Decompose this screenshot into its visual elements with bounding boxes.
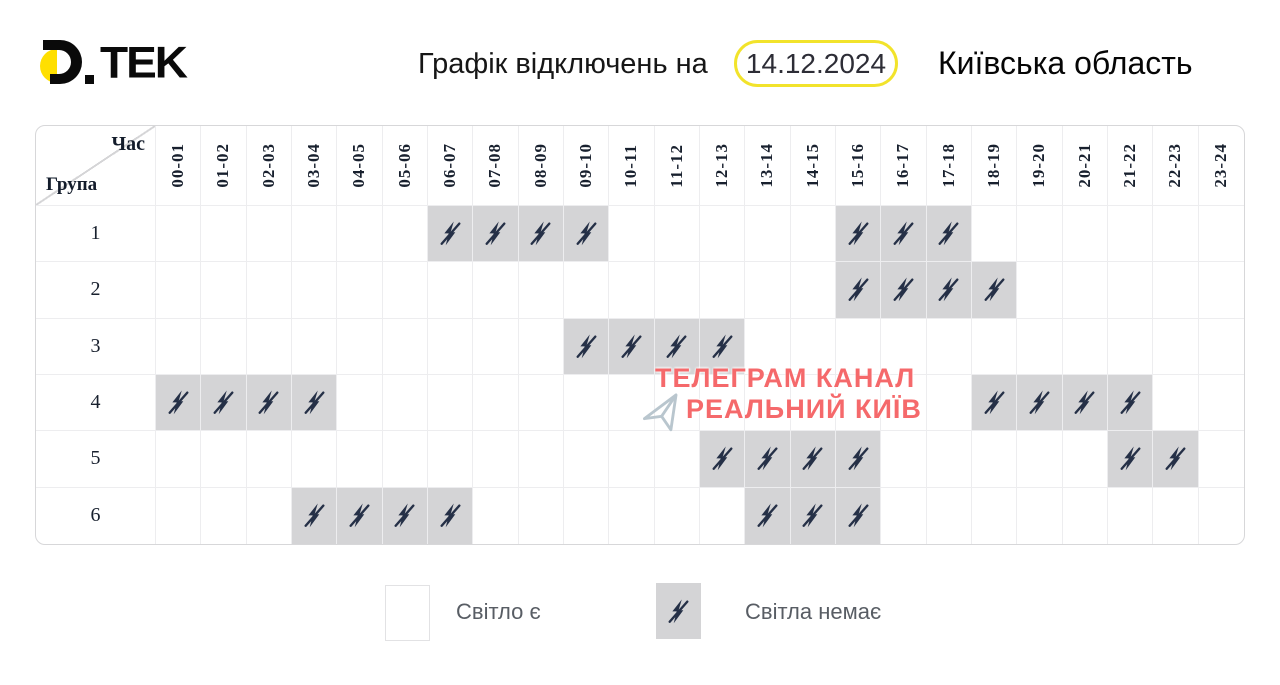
schedule-cell-g3-20-21-on <box>1063 319 1108 375</box>
schedule-cell-g3-01-02-on <box>201 319 246 375</box>
schedule-cell-g1-07-08-off <box>473 206 518 262</box>
schedule-cell-g6-23-24-on <box>1199 488 1244 544</box>
schedule-cell-g2-02-03-on <box>247 262 292 318</box>
hour-header-18-19: 18-19 <box>972 126 1017 206</box>
schedule-cell-g5-22-23-off <box>1153 431 1198 487</box>
schedule-cell-g6-14-15-off <box>791 488 836 544</box>
group-label-5: 5 <box>36 431 156 487</box>
schedule-cell-g4-21-22-off <box>1108 375 1153 431</box>
schedule-cell-g3-00-01-on <box>156 319 201 375</box>
hour-label: 20-21 <box>1075 143 1095 188</box>
schedule-cell-g1-08-09-off <box>519 206 564 262</box>
schedule-cell-g6-05-06-off <box>383 488 428 544</box>
hour-header-13-14: 13-14 <box>745 126 790 206</box>
schedule-cell-g3-07-08-on <box>473 319 518 375</box>
schedule-cell-g3-06-07-on <box>428 319 473 375</box>
power-off-icon <box>847 445 870 472</box>
power-off-icon <box>711 333 734 360</box>
hour-label: 10-11 <box>621 144 641 188</box>
schedule-cell-g6-22-23-on <box>1153 488 1198 544</box>
schedule-cell-g2-09-10-on <box>564 262 609 318</box>
hour-header-20-21: 20-21 <box>1063 126 1108 206</box>
schedule-cell-g4-20-21-off <box>1063 375 1108 431</box>
schedule-cell-g5-07-08-on <box>473 431 518 487</box>
schedule-cell-g5-04-05-on <box>337 431 382 487</box>
schedule-cell-g6-20-21-on <box>1063 488 1108 544</box>
schedule-cell-g2-06-07-on <box>428 262 473 318</box>
schedule-cell-g5-13-14-off <box>745 431 790 487</box>
hour-label: 03-04 <box>304 143 324 188</box>
hour-label: 23-24 <box>1211 143 1231 188</box>
page: TEK Графік відключень на 14.12.2024 Київ… <box>0 0 1280 685</box>
schedule-cell-g2-15-16-off <box>836 262 881 318</box>
schedule-cell-g2-08-09-on <box>519 262 564 318</box>
schedule-cell-g1-13-14-on <box>745 206 790 262</box>
power-off-icon <box>983 389 1006 416</box>
power-off-icon <box>348 502 371 529</box>
schedule-cell-g6-01-02-on <box>201 488 246 544</box>
schedule-cell-g3-23-24-on <box>1199 319 1244 375</box>
schedule-cell-g2-11-12-on <box>655 262 700 318</box>
power-off-icon <box>439 220 462 247</box>
hour-header-22-23: 22-23 <box>1153 126 1198 206</box>
schedule-cell-g1-15-16-off <box>836 206 881 262</box>
schedule-cell-g2-07-08-on <box>473 262 518 318</box>
hour-label: 15-16 <box>848 143 868 188</box>
schedule-cell-g1-18-19-on <box>972 206 1017 262</box>
power-off-icon <box>257 389 280 416</box>
hour-header-10-11: 10-11 <box>609 126 654 206</box>
schedule-cell-g2-05-06-on <box>383 262 428 318</box>
power-off-icon <box>1119 445 1142 472</box>
schedule-cell-g1-11-12-on <box>655 206 700 262</box>
region-label: Київська область <box>938 45 1193 82</box>
power-off-icon <box>212 389 235 416</box>
hour-header-07-08: 07-08 <box>473 126 518 206</box>
schedule-cell-g4-04-05-on <box>337 375 382 431</box>
schedule-cell-g6-07-08-on <box>473 488 518 544</box>
power-off-icon <box>937 220 960 247</box>
legend-off-box <box>656 583 701 639</box>
power-off-icon <box>1119 389 1142 416</box>
schedule-cell-g6-17-18-on <box>927 488 972 544</box>
hour-header-00-01: 00-01 <box>156 126 201 206</box>
hour-label: 05-06 <box>395 143 415 188</box>
power-off-icon <box>1164 445 1187 472</box>
power-off-icon <box>575 333 598 360</box>
schedule-cell-g4-03-04-off <box>292 375 337 431</box>
group-label-2: 2 <box>36 262 156 318</box>
hour-label: 08-09 <box>531 143 551 188</box>
power-off-icon <box>167 389 190 416</box>
power-off-icon <box>801 502 824 529</box>
schedule-cell-g4-00-01-off <box>156 375 201 431</box>
schedule-cell-g1-21-22-on <box>1108 206 1153 262</box>
power-off-icon <box>439 502 462 529</box>
schedule-cell-g5-06-07-on <box>428 431 473 487</box>
schedule-cell-g3-02-03-on <box>247 319 292 375</box>
schedule-cell-g5-12-13-off <box>700 431 745 487</box>
watermark-line2: РЕАЛЬНИЙ КИЇВ <box>686 394 922 425</box>
schedule-cell-g6-09-10-on <box>564 488 609 544</box>
schedule-cell-g2-13-14-on <box>745 262 790 318</box>
hour-label: 18-19 <box>984 143 1004 188</box>
hour-label: 21-22 <box>1120 143 1140 188</box>
legend: Світло є Світла немає <box>0 583 1280 645</box>
schedule-cell-g6-00-01-on <box>156 488 201 544</box>
hour-header-14-15: 14-15 <box>791 126 836 206</box>
schedule-table: Час Група 00-0101-0202-0303-0404-0505-06… <box>35 125 1245 545</box>
schedule-cell-g3-22-23-on <box>1153 319 1198 375</box>
schedule-cell-g1-10-11-on <box>609 206 654 262</box>
schedule-cell-g6-04-05-off <box>337 488 382 544</box>
schedule-cell-g5-01-02-on <box>201 431 246 487</box>
schedule-cell-g5-08-09-on <box>519 431 564 487</box>
watermark-line1: ТЕЛЕГРАМ КАНАЛ <box>655 363 915 394</box>
schedule-cell-g1-02-03-on <box>247 206 292 262</box>
schedule-cell-g5-15-16-off <box>836 431 881 487</box>
schedule-cell-g5-09-10-on <box>564 431 609 487</box>
schedule-cell-g2-04-05-on <box>337 262 382 318</box>
hour-label: 00-01 <box>168 143 188 188</box>
schedule-cell-g1-00-01-on <box>156 206 201 262</box>
power-off-icon <box>303 502 326 529</box>
power-off-icon <box>1028 389 1051 416</box>
schedule-cell-g4-01-02-off <box>201 375 246 431</box>
power-off-icon <box>575 220 598 247</box>
schedule-cell-g2-12-13-on <box>700 262 745 318</box>
schedule-cell-g5-21-22-off <box>1108 431 1153 487</box>
power-off-icon <box>983 276 1006 303</box>
hour-label: 13-14 <box>757 143 777 188</box>
power-off-icon <box>303 389 326 416</box>
schedule-cell-g6-10-11-on <box>609 488 654 544</box>
schedule-cell-g2-18-19-off <box>972 262 1017 318</box>
hour-header-15-16: 15-16 <box>836 126 881 206</box>
power-off-icon <box>756 502 779 529</box>
hour-header-11-12: 11-12 <box>655 126 700 206</box>
schedule-cell-g3-17-18-on <box>927 319 972 375</box>
schedule-cell-g6-03-04-off <box>292 488 337 544</box>
hour-label: 06-07 <box>440 143 460 188</box>
schedule-cell-g1-20-21-on <box>1063 206 1108 262</box>
power-off-icon <box>892 220 915 247</box>
schedule-cell-g3-09-10-off <box>564 319 609 375</box>
hour-header-05-06: 05-06 <box>383 126 428 206</box>
schedule-cell-g5-20-21-on <box>1063 431 1108 487</box>
hour-label: 16-17 <box>893 143 913 188</box>
hour-header-03-04: 03-04 <box>292 126 337 206</box>
group-label-6: 6 <box>36 488 156 544</box>
power-off-icon <box>801 445 824 472</box>
schedule-cell-g4-17-18-on <box>927 375 972 431</box>
schedule-cell-g5-00-01-on <box>156 431 201 487</box>
hour-label: 02-03 <box>259 143 279 188</box>
hour-label: 12-13 <box>712 143 732 188</box>
power-off-icon <box>847 276 870 303</box>
schedule-cell-g3-19-20-on <box>1017 319 1062 375</box>
schedule-cell-g6-08-09-on <box>519 488 564 544</box>
schedule-cell-g6-12-13-on <box>700 488 745 544</box>
schedule-cell-g6-16-17-on <box>881 488 926 544</box>
schedule-cell-g2-17-18-off <box>927 262 972 318</box>
hour-header-17-18: 17-18 <box>927 126 972 206</box>
schedule-cell-g3-05-06-on <box>383 319 428 375</box>
hour-header-08-09: 08-09 <box>519 126 564 206</box>
schedule-cell-g3-10-11-off <box>609 319 654 375</box>
schedule-cell-g6-02-03-on <box>247 488 292 544</box>
schedule-cell-g6-13-14-off <box>745 488 790 544</box>
schedule-cell-g2-14-15-on <box>791 262 836 318</box>
power-off-icon <box>665 333 688 360</box>
legend-off-label: Світла немає <box>745 599 881 625</box>
power-off-icon <box>1073 389 1096 416</box>
schedule-cell-g2-23-24-on <box>1199 262 1244 318</box>
schedule-cell-g1-06-07-off <box>428 206 473 262</box>
schedule-cell-g4-06-07-on <box>428 375 473 431</box>
hour-label: 11-12 <box>667 144 687 188</box>
schedule-cell-g5-02-03-on <box>247 431 292 487</box>
schedule-cell-g3-04-05-on <box>337 319 382 375</box>
group-label-3: 3 <box>36 319 156 375</box>
hour-label: 19-20 <box>1029 143 1049 188</box>
hour-header-19-20: 19-20 <box>1017 126 1062 206</box>
dtek-logo-d-icon <box>36 36 98 88</box>
schedule-cell-g4-18-19-off <box>972 375 1017 431</box>
schedule-cell-g1-17-18-off <box>927 206 972 262</box>
hour-header-09-10: 09-10 <box>564 126 609 206</box>
hour-label: 22-23 <box>1165 143 1185 188</box>
dtek-logo-text: TEK <box>100 37 186 87</box>
power-off-icon <box>393 502 416 529</box>
hour-header-01-02: 01-02 <box>201 126 246 206</box>
power-off-icon <box>711 445 734 472</box>
schedule-cell-g5-17-18-on <box>927 431 972 487</box>
schedule-cell-g1-04-05-on <box>337 206 382 262</box>
schedule-cell-g6-06-07-off <box>428 488 473 544</box>
power-off-icon <box>847 502 870 529</box>
power-off-icon <box>620 333 643 360</box>
date-value: 14.12.2024 <box>746 48 886 80</box>
hour-header-16-17: 16-17 <box>881 126 926 206</box>
schedule-cell-g6-18-19-on <box>972 488 1017 544</box>
schedule-cell-g5-23-24-on <box>1199 431 1244 487</box>
schedule-cell-g5-14-15-off <box>791 431 836 487</box>
schedule-cell-g6-19-20-on <box>1017 488 1062 544</box>
schedule-cell-g4-23-24-on <box>1199 375 1244 431</box>
schedule-cell-g2-20-21-on <box>1063 262 1108 318</box>
schedule-cell-g5-16-17-on <box>881 431 926 487</box>
schedule-cell-g2-21-22-on <box>1108 262 1153 318</box>
hour-label: 01-02 <box>213 143 233 188</box>
schedule-cell-g2-19-20-on <box>1017 262 1062 318</box>
schedule-cell-g1-23-24-on <box>1199 206 1244 262</box>
hour-header-23-24: 23-24 <box>1199 126 1244 206</box>
power-off-icon <box>847 220 870 247</box>
schedule-cell-g2-00-01-on <box>156 262 201 318</box>
hour-label: 04-05 <box>349 143 369 188</box>
schedule-cell-g5-03-04-on <box>292 431 337 487</box>
schedule-cell-g4-22-23-on <box>1153 375 1198 431</box>
power-off-icon <box>667 598 690 625</box>
dtek-logo: TEK <box>36 34 186 90</box>
hour-header-12-13: 12-13 <box>700 126 745 206</box>
corner-group-label: Група <box>46 174 97 196</box>
corner-time-label: Час <box>111 133 145 156</box>
schedule-cell-g1-16-17-off <box>881 206 926 262</box>
schedule-cell-g1-05-06-on <box>383 206 428 262</box>
schedule-cell-g6-15-16-off <box>836 488 881 544</box>
hour-label: 07-08 <box>485 143 505 188</box>
power-off-icon <box>529 220 552 247</box>
group-label-1: 1 <box>36 206 156 262</box>
schedule-cell-g1-14-15-on <box>791 206 836 262</box>
schedule-cell-g1-22-23-on <box>1153 206 1198 262</box>
schedule-cell-g1-01-02-on <box>201 206 246 262</box>
hour-header-21-22: 21-22 <box>1108 126 1153 206</box>
schedule-cell-g3-18-19-on <box>972 319 1017 375</box>
schedule-cell-g3-08-09-on <box>519 319 564 375</box>
schedule-cell-g5-19-20-on <box>1017 431 1062 487</box>
schedule-cell-g4-09-10-on <box>564 375 609 431</box>
schedule-cell-g4-08-09-on <box>519 375 564 431</box>
schedule-cell-g6-21-22-on <box>1108 488 1153 544</box>
schedule-cell-g2-01-02-on <box>201 262 246 318</box>
schedule-cell-g4-05-06-on <box>383 375 428 431</box>
schedule-cell-g1-03-04-on <box>292 206 337 262</box>
schedule-cell-g2-22-23-on <box>1153 262 1198 318</box>
group-label-4: 4 <box>36 375 156 431</box>
schedule-cell-g5-11-12-on <box>655 431 700 487</box>
hour-label: 14-15 <box>803 143 823 188</box>
schedule-cell-g6-11-12-on <box>655 488 700 544</box>
schedule-cell-g2-10-11-on <box>609 262 654 318</box>
schedule-cell-g3-03-04-on <box>292 319 337 375</box>
schedule-cell-g1-19-20-on <box>1017 206 1062 262</box>
legend-on-label: Світло є <box>456 599 541 625</box>
power-off-icon <box>756 445 779 472</box>
schedule-cell-g2-03-04-on <box>292 262 337 318</box>
schedule-cell-g2-16-17-off <box>881 262 926 318</box>
hour-header-06-07: 06-07 <box>428 126 473 206</box>
hour-header-04-05: 04-05 <box>337 126 382 206</box>
schedule-cell-g5-18-19-on <box>972 431 1017 487</box>
date-badge: 14.12.2024 <box>734 40 898 87</box>
schedule-cell-g3-21-22-on <box>1108 319 1153 375</box>
schedule-cell-g4-07-08-on <box>473 375 518 431</box>
hour-label: 17-18 <box>939 143 959 188</box>
hour-header-02-03: 02-03 <box>247 126 292 206</box>
page-title: Графік відключень на <box>418 48 708 81</box>
schedule-cell-g4-02-03-off <box>247 375 292 431</box>
schedule-cell-g1-12-13-on <box>700 206 745 262</box>
schedule-cell-g5-05-06-on <box>383 431 428 487</box>
schedule-cell-g1-09-10-off <box>564 206 609 262</box>
power-off-icon <box>892 276 915 303</box>
hour-label: 09-10 <box>576 143 596 188</box>
power-off-icon <box>937 276 960 303</box>
schedule-cell-g4-19-20-off <box>1017 375 1062 431</box>
legend-on-box <box>385 585 430 641</box>
table-corner-cell: Час Група <box>36 126 156 206</box>
power-off-icon <box>484 220 507 247</box>
